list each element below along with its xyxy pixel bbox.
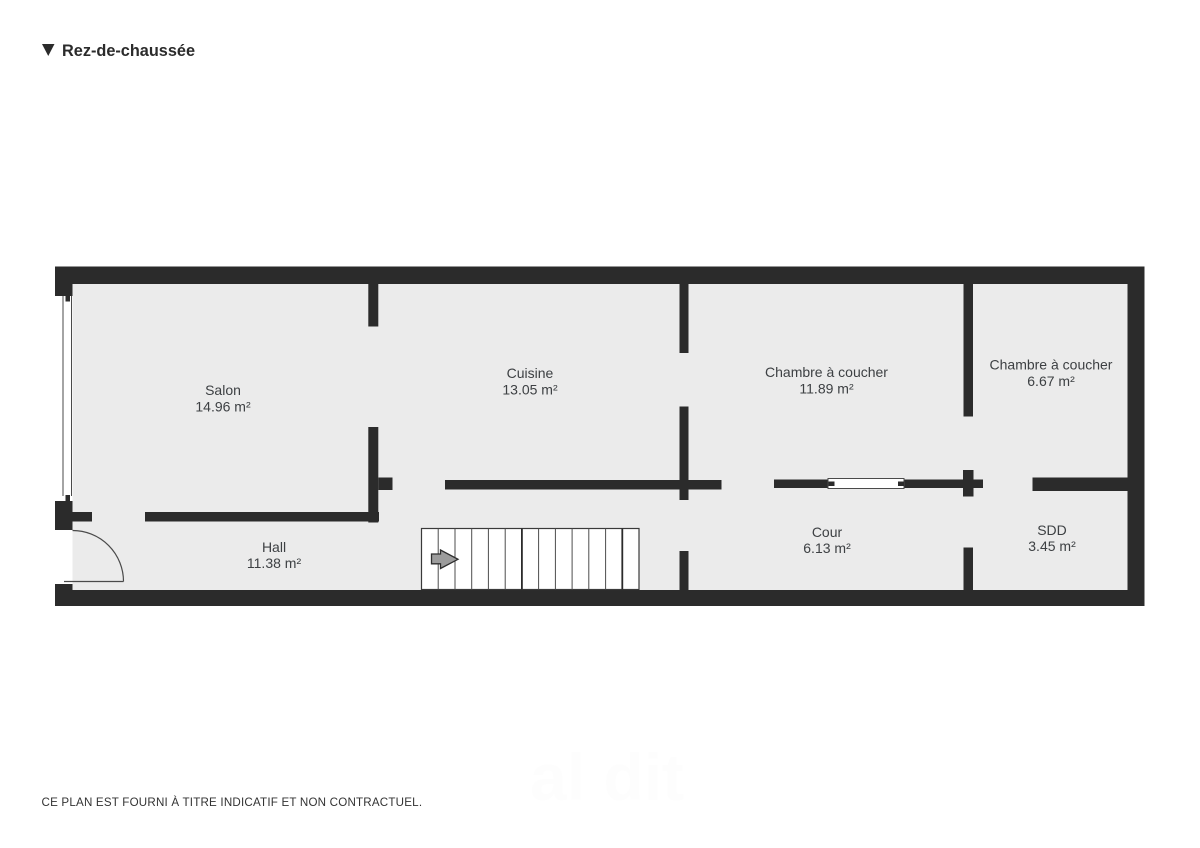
svg-text:Rez-de-chaussée: Rez-de-chaussée [62,42,195,60]
svg-text:13.05 m²: 13.05 m² [502,382,558,398]
svg-text:11.89 m²: 11.89 m² [799,381,854,397]
svg-text:Cuisine: Cuisine [507,365,554,381]
svg-text:Chambre à coucher: Chambre à coucher [990,357,1113,373]
svg-text:SDD: SDD [1037,522,1067,538]
svg-text:Chambre à coucher: Chambre à coucher [765,364,888,380]
svg-text:6.13 m²: 6.13 m² [803,540,851,556]
svg-text:al dit: al dit [530,740,684,814]
svg-text:6.67 m²: 6.67 m² [1027,373,1075,389]
svg-text:CE PLAN EST FOURNI À TITRE IND: CE PLAN EST FOURNI À TITRE INDICATIF ET … [42,796,423,809]
svg-text:3.45 m²: 3.45 m² [1028,538,1076,554]
svg-text:Cour: Cour [812,524,843,540]
svg-text:Salon: Salon [205,382,241,398]
svg-text:11.38 m²: 11.38 m² [247,555,302,571]
svg-text:14.96 m²: 14.96 m² [195,399,251,415]
svg-text:Hall: Hall [262,539,286,555]
